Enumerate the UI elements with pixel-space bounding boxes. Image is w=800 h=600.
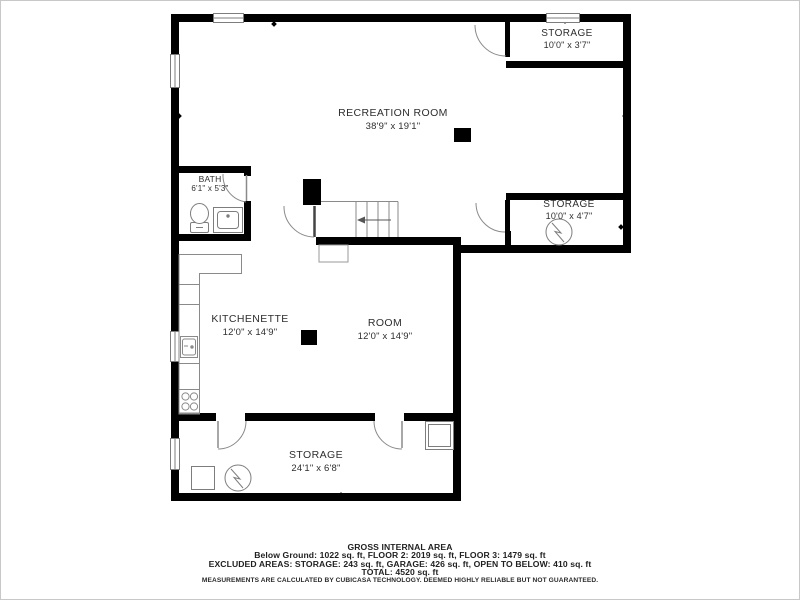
room-label-recreation-room: RECREATION ROOM 38'9" x 19'1": [338, 107, 448, 133]
room-dims: 6'1" x 5'3": [191, 184, 228, 194]
room-dims: 12'0" x 14'9": [358, 330, 413, 343]
area-summary-total: TOTAL: 4520 sq. ft: [1, 568, 799, 576]
window-icon: [171, 55, 180, 88]
floorplan-drawing: [1, 1, 800, 600]
water-heaters: [225, 219, 572, 491]
room-label-bath: BATH 6'1" x 5'3": [191, 174, 228, 194]
door-storage-bottom-right: [374, 421, 402, 449]
stairs-icon: [319, 202, 398, 263]
bathroom-sink-icon: [214, 208, 243, 233]
toilet-icon: [191, 204, 209, 233]
room-name: STORAGE: [541, 28, 593, 40]
storage-objects: [192, 128, 472, 490]
door-storage-top: [475, 22, 510, 57]
stairs-direction-arrow: [357, 217, 391, 224]
water-heater-icon: [546, 219, 572, 245]
room-dims: 38'9" x 19'1": [338, 120, 448, 133]
storage-box-double: [426, 422, 454, 450]
column: [454, 128, 471, 142]
bath-fixtures: [191, 204, 243, 233]
room-name: BATH: [191, 174, 228, 184]
area-summary-disclaimer: MEASUREMENTS ARE CALCULATED BY CUBICASA …: [1, 576, 799, 586]
room-label-storage-top: STORAGE 10'0" x 3'7": [541, 28, 593, 51]
room-name: ROOM: [358, 317, 413, 330]
room-dims: 10'0" x 4'7": [543, 211, 595, 223]
understair-closet: [319, 245, 348, 262]
window-icon: [171, 439, 180, 470]
room-dims: 24'1" x 6'8": [289, 462, 343, 475]
room-name: RECREATION ROOM: [338, 107, 448, 120]
floorplan-canvas: RECREATION ROOM 38'9" x 19'1" STORAGE 10…: [0, 0, 800, 600]
room-dims: 10'0" x 3'7": [541, 40, 593, 52]
water-heater-icon: [225, 465, 251, 491]
storage-box: [192, 467, 215, 490]
room-label-room: ROOM 12'0" x 14'9": [358, 317, 413, 343]
door-storage-bottom-left: [218, 421, 246, 449]
room-name: STORAGE: [543, 199, 595, 211]
column: [301, 330, 317, 345]
room-label-kitchenette: KITCHENETTE 12'0" x 14'9": [211, 313, 288, 339]
room-name: KITCHENETTE: [211, 313, 288, 326]
window-icon: [547, 14, 580, 23]
door-storage-mid: [476, 200, 510, 232]
window-icon: [171, 332, 180, 362]
kitchen-sink-icon: [181, 337, 198, 358]
area-summary: GROSS INTERNAL AREA Below Ground: 1022 s…: [1, 543, 799, 586]
room-label-storage-mid: STORAGE 10'0" x 4'7": [543, 199, 595, 222]
room-dims: 12'0" x 14'9": [211, 326, 288, 339]
stove-icon: [179, 390, 200, 414]
doors: [218, 22, 510, 449]
room-label-storage-bottom: STORAGE 24'1" x 6'8": [289, 449, 343, 475]
window-icon: [214, 14, 244, 23]
room-name: STORAGE: [289, 449, 343, 462]
door-stairs: [284, 206, 315, 237]
